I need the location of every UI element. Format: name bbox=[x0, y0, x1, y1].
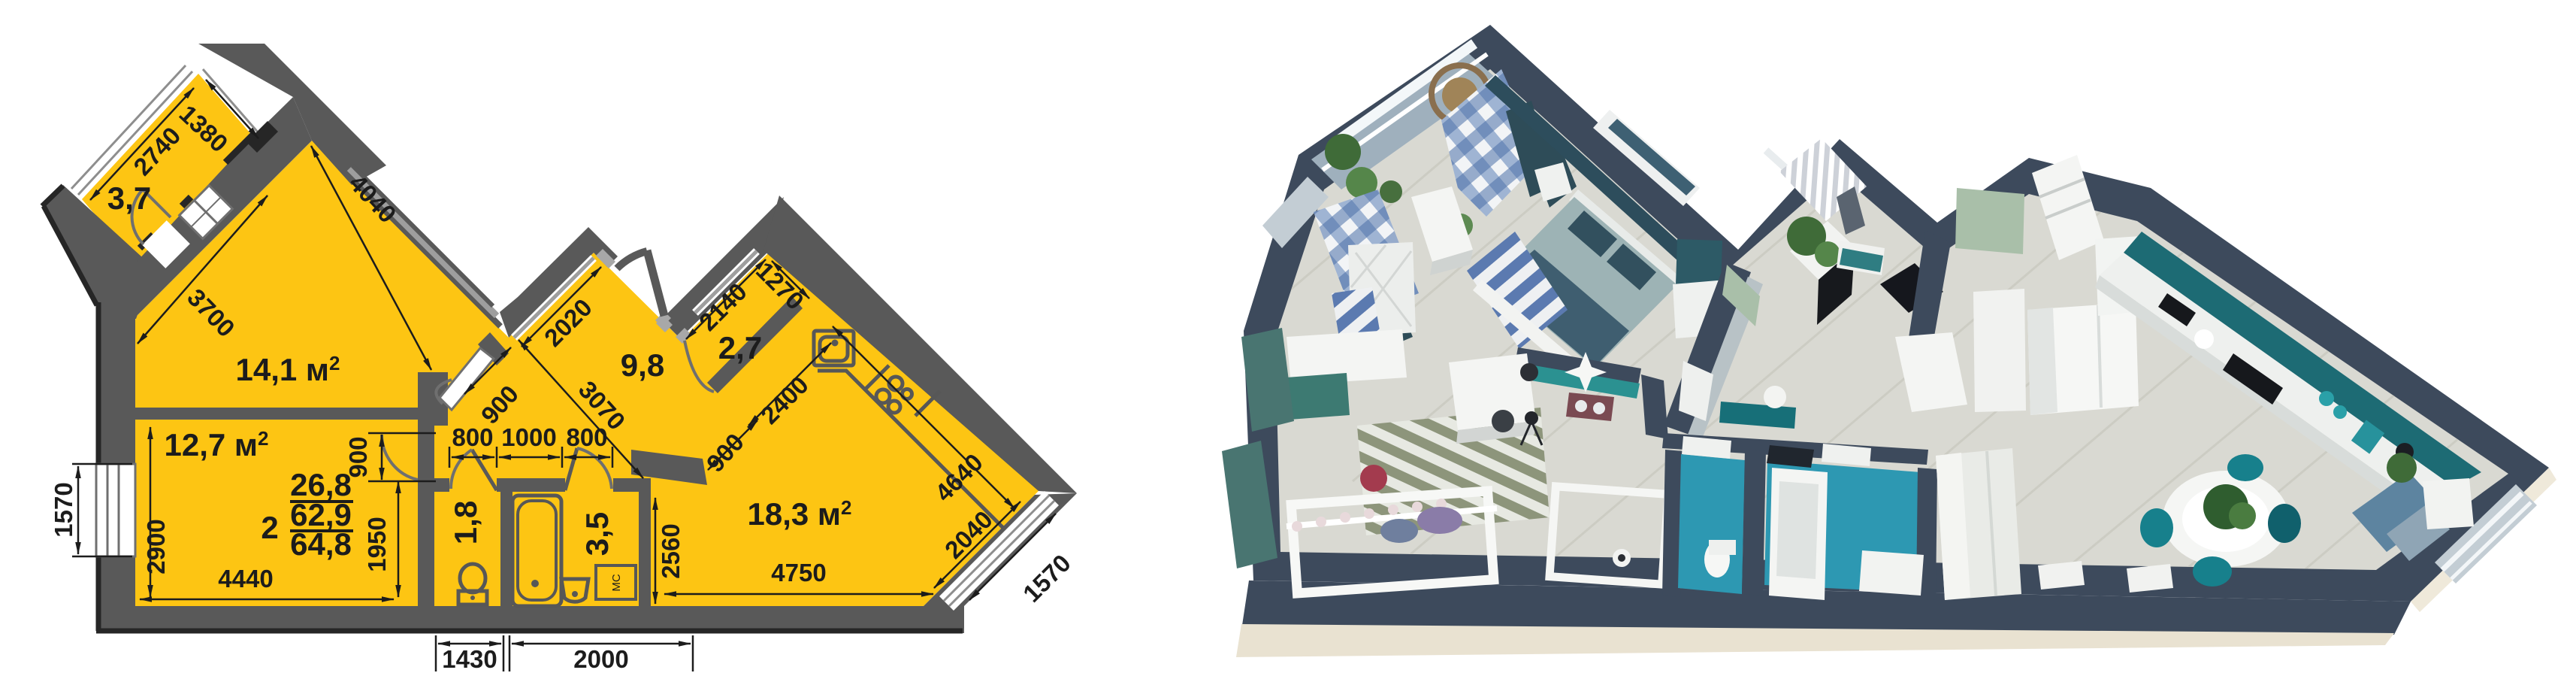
svg-text:2,7: 2,7 bbox=[718, 330, 762, 365]
svg-text:4750: 4750 bbox=[771, 559, 826, 587]
svg-text:2: 2 bbox=[261, 510, 278, 545]
svg-text:3,5: 3,5 bbox=[579, 512, 615, 556]
svg-text:3,7: 3,7 bbox=[107, 180, 151, 216]
svg-text:64,8: 64,8 bbox=[290, 526, 352, 562]
svg-text:800: 800 bbox=[566, 423, 607, 451]
svg-text:МС: МС bbox=[610, 574, 623, 591]
svg-text:1,8: 1,8 bbox=[448, 501, 483, 544]
svg-text:2560: 2560 bbox=[657, 523, 685, 578]
svg-text:14,1 м2: 14,1 м2 bbox=[236, 352, 340, 387]
svg-text:2000: 2000 bbox=[573, 645, 628, 673]
svg-text:1430: 1430 bbox=[442, 645, 497, 673]
svg-text:18,3 м2: 18,3 м2 bbox=[748, 496, 852, 532]
svg-text:1570: 1570 bbox=[50, 482, 77, 537]
svg-text:1950: 1950 bbox=[363, 517, 391, 571]
svg-text:1000: 1000 bbox=[501, 423, 556, 451]
svg-text:2900: 2900 bbox=[142, 519, 170, 574]
svg-text:4440: 4440 bbox=[218, 565, 273, 593]
svg-text:12,7 м2: 12,7 м2 bbox=[165, 427, 269, 462]
svg-text:800: 800 bbox=[452, 423, 493, 451]
svg-text:9,8: 9,8 bbox=[621, 347, 664, 383]
